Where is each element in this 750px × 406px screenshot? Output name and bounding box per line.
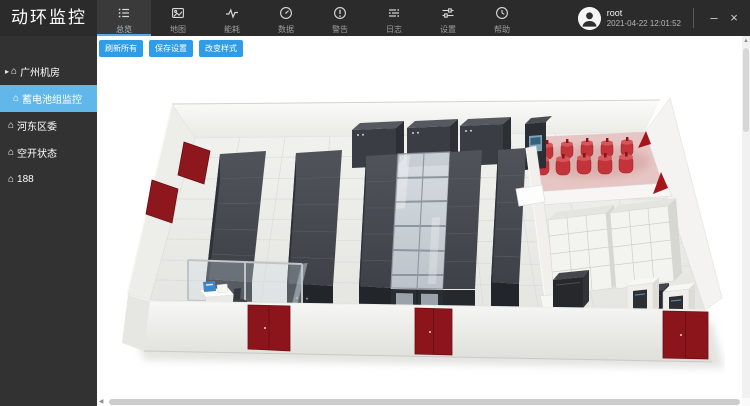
nav-item-logs[interactable]: 日志 <box>367 0 421 36</box>
horizontal-scrollbar[interactable]: ◀ <box>97 398 742 406</box>
main-content: 刷新所有 保存设置 改变样式 <box>97 36 742 398</box>
username: root <box>607 8 681 19</box>
top-bar: 动环监控 总览 地图 能耗 <box>0 0 750 36</box>
sidebar-item-breaker-status[interactable]: ⌂ 空开状态 <box>0 139 97 166</box>
minimize-button[interactable]: – <box>704 0 724 36</box>
scrollbar-corner <box>742 398 750 406</box>
scene-toolbar: 刷新所有 保存设置 改变样式 <box>99 40 243 57</box>
sidebar-item-label: 空开状态 <box>17 145 57 160</box>
settings-sliders-icon <box>441 6 455 20</box>
vertical-scroll-thumb[interactable] <box>743 48 749 132</box>
nav-item-help[interactable]: 帮助 <box>475 0 529 36</box>
room-3d-view[interactable] <box>100 58 725 388</box>
home-icon: ⌂ <box>11 66 17 77</box>
nav-item-overview[interactable]: 总览 <box>97 0 151 36</box>
alert-circle-icon <box>333 6 347 20</box>
horizontal-scroll-thumb[interactable] <box>109 399 740 405</box>
help-clock-icon <box>495 6 509 20</box>
close-button[interactable]: × <box>724 0 744 36</box>
sidebar: ▸ ⌂ 广州机房 ⌂ 蓄电池组监控 ⌂ 河东区委 ⌂ 空开状态 ⌂ 188 <box>0 36 97 406</box>
sidebar-item-label: 广州机房 <box>20 64 60 79</box>
user-avatar[interactable] <box>578 7 601 30</box>
nav-item-energy[interactable]: 能耗 <box>205 0 259 36</box>
top-nav: 总览 地图 能耗 数据 <box>97 0 529 36</box>
sidebar-item-188[interactable]: ⌂ 188 <box>0 166 97 193</box>
change-style-button[interactable]: 改变样式 <box>199 40 243 57</box>
sidebar-item-label: 河东区委 <box>17 118 57 133</box>
user-box: root 2021-04-22 12:01:52 – × <box>578 0 750 36</box>
home-icon: ⌂ <box>8 147 14 158</box>
expand-caret-icon: ▸ <box>5 67 9 76</box>
energy-wave-icon <box>225 6 239 20</box>
nav-label: 帮助 <box>494 24 510 35</box>
scroll-up-icon[interactable]: ▲ <box>742 36 750 46</box>
battery-rack-group-2[interactable] <box>610 198 682 289</box>
nav-item-alerts[interactable]: 警告 <box>313 0 367 36</box>
front-door-1[interactable] <box>248 305 290 351</box>
glass-roof <box>391 152 450 289</box>
nav-item-settings[interactable]: 设置 <box>421 0 475 36</box>
ups-unit-1[interactable] <box>553 270 589 311</box>
nav-item-map[interactable]: 地图 <box>151 0 205 36</box>
nav-label: 总览 <box>116 24 132 35</box>
nav-label: 设置 <box>440 24 456 35</box>
home-icon: ⌂ <box>8 174 14 185</box>
partition-placard <box>516 185 545 206</box>
data-gauge-icon <box>279 6 293 20</box>
divider <box>693 8 694 28</box>
sidebar-item-guangzhou-room[interactable]: ▸ ⌂ 广州机房 <box>0 58 97 85</box>
cold-aisle-containment[interactable] <box>359 150 482 317</box>
scroll-left-icon[interactable]: ◀ <box>97 398 105 406</box>
vertical-scrollbar[interactable]: ▲ <box>742 36 750 398</box>
sidebar-item-battery-monitoring[interactable]: ⌂ 蓄电池组监控 <box>0 85 97 112</box>
home-icon: ⌂ <box>8 120 14 131</box>
save-settings-button[interactable]: 保存设置 <box>149 40 193 57</box>
sidebar-item-label: 188 <box>17 174 34 185</box>
logs-lines-icon <box>387 6 401 20</box>
nav-label: 警告 <box>332 24 348 35</box>
front-door-3[interactable] <box>663 311 708 359</box>
nav-label: 日志 <box>386 24 402 35</box>
map-image-icon <box>171 6 185 20</box>
nav-label: 能耗 <box>224 24 240 35</box>
overview-list-icon <box>117 6 131 20</box>
sidebar-item-label: 蓄电池组监控 <box>22 91 82 106</box>
home-icon: ⌂ <box>13 93 19 104</box>
front-door-2[interactable] <box>415 308 452 355</box>
app-window: 动环监控 总览 地图 能耗 <box>0 0 750 406</box>
nav-label: 地图 <box>170 24 186 35</box>
nav-item-data[interactable]: 数据 <box>259 0 313 36</box>
nav-label: 数据 <box>278 24 294 35</box>
app-title: 动环监控 <box>0 0 97 36</box>
login-timestamp: 2021-04-22 12:01:52 <box>607 19 681 29</box>
refresh-all-button[interactable]: 刷新所有 <box>99 40 143 57</box>
sidebar-item-hedong[interactable]: ⌂ 河东区委 <box>0 112 97 139</box>
